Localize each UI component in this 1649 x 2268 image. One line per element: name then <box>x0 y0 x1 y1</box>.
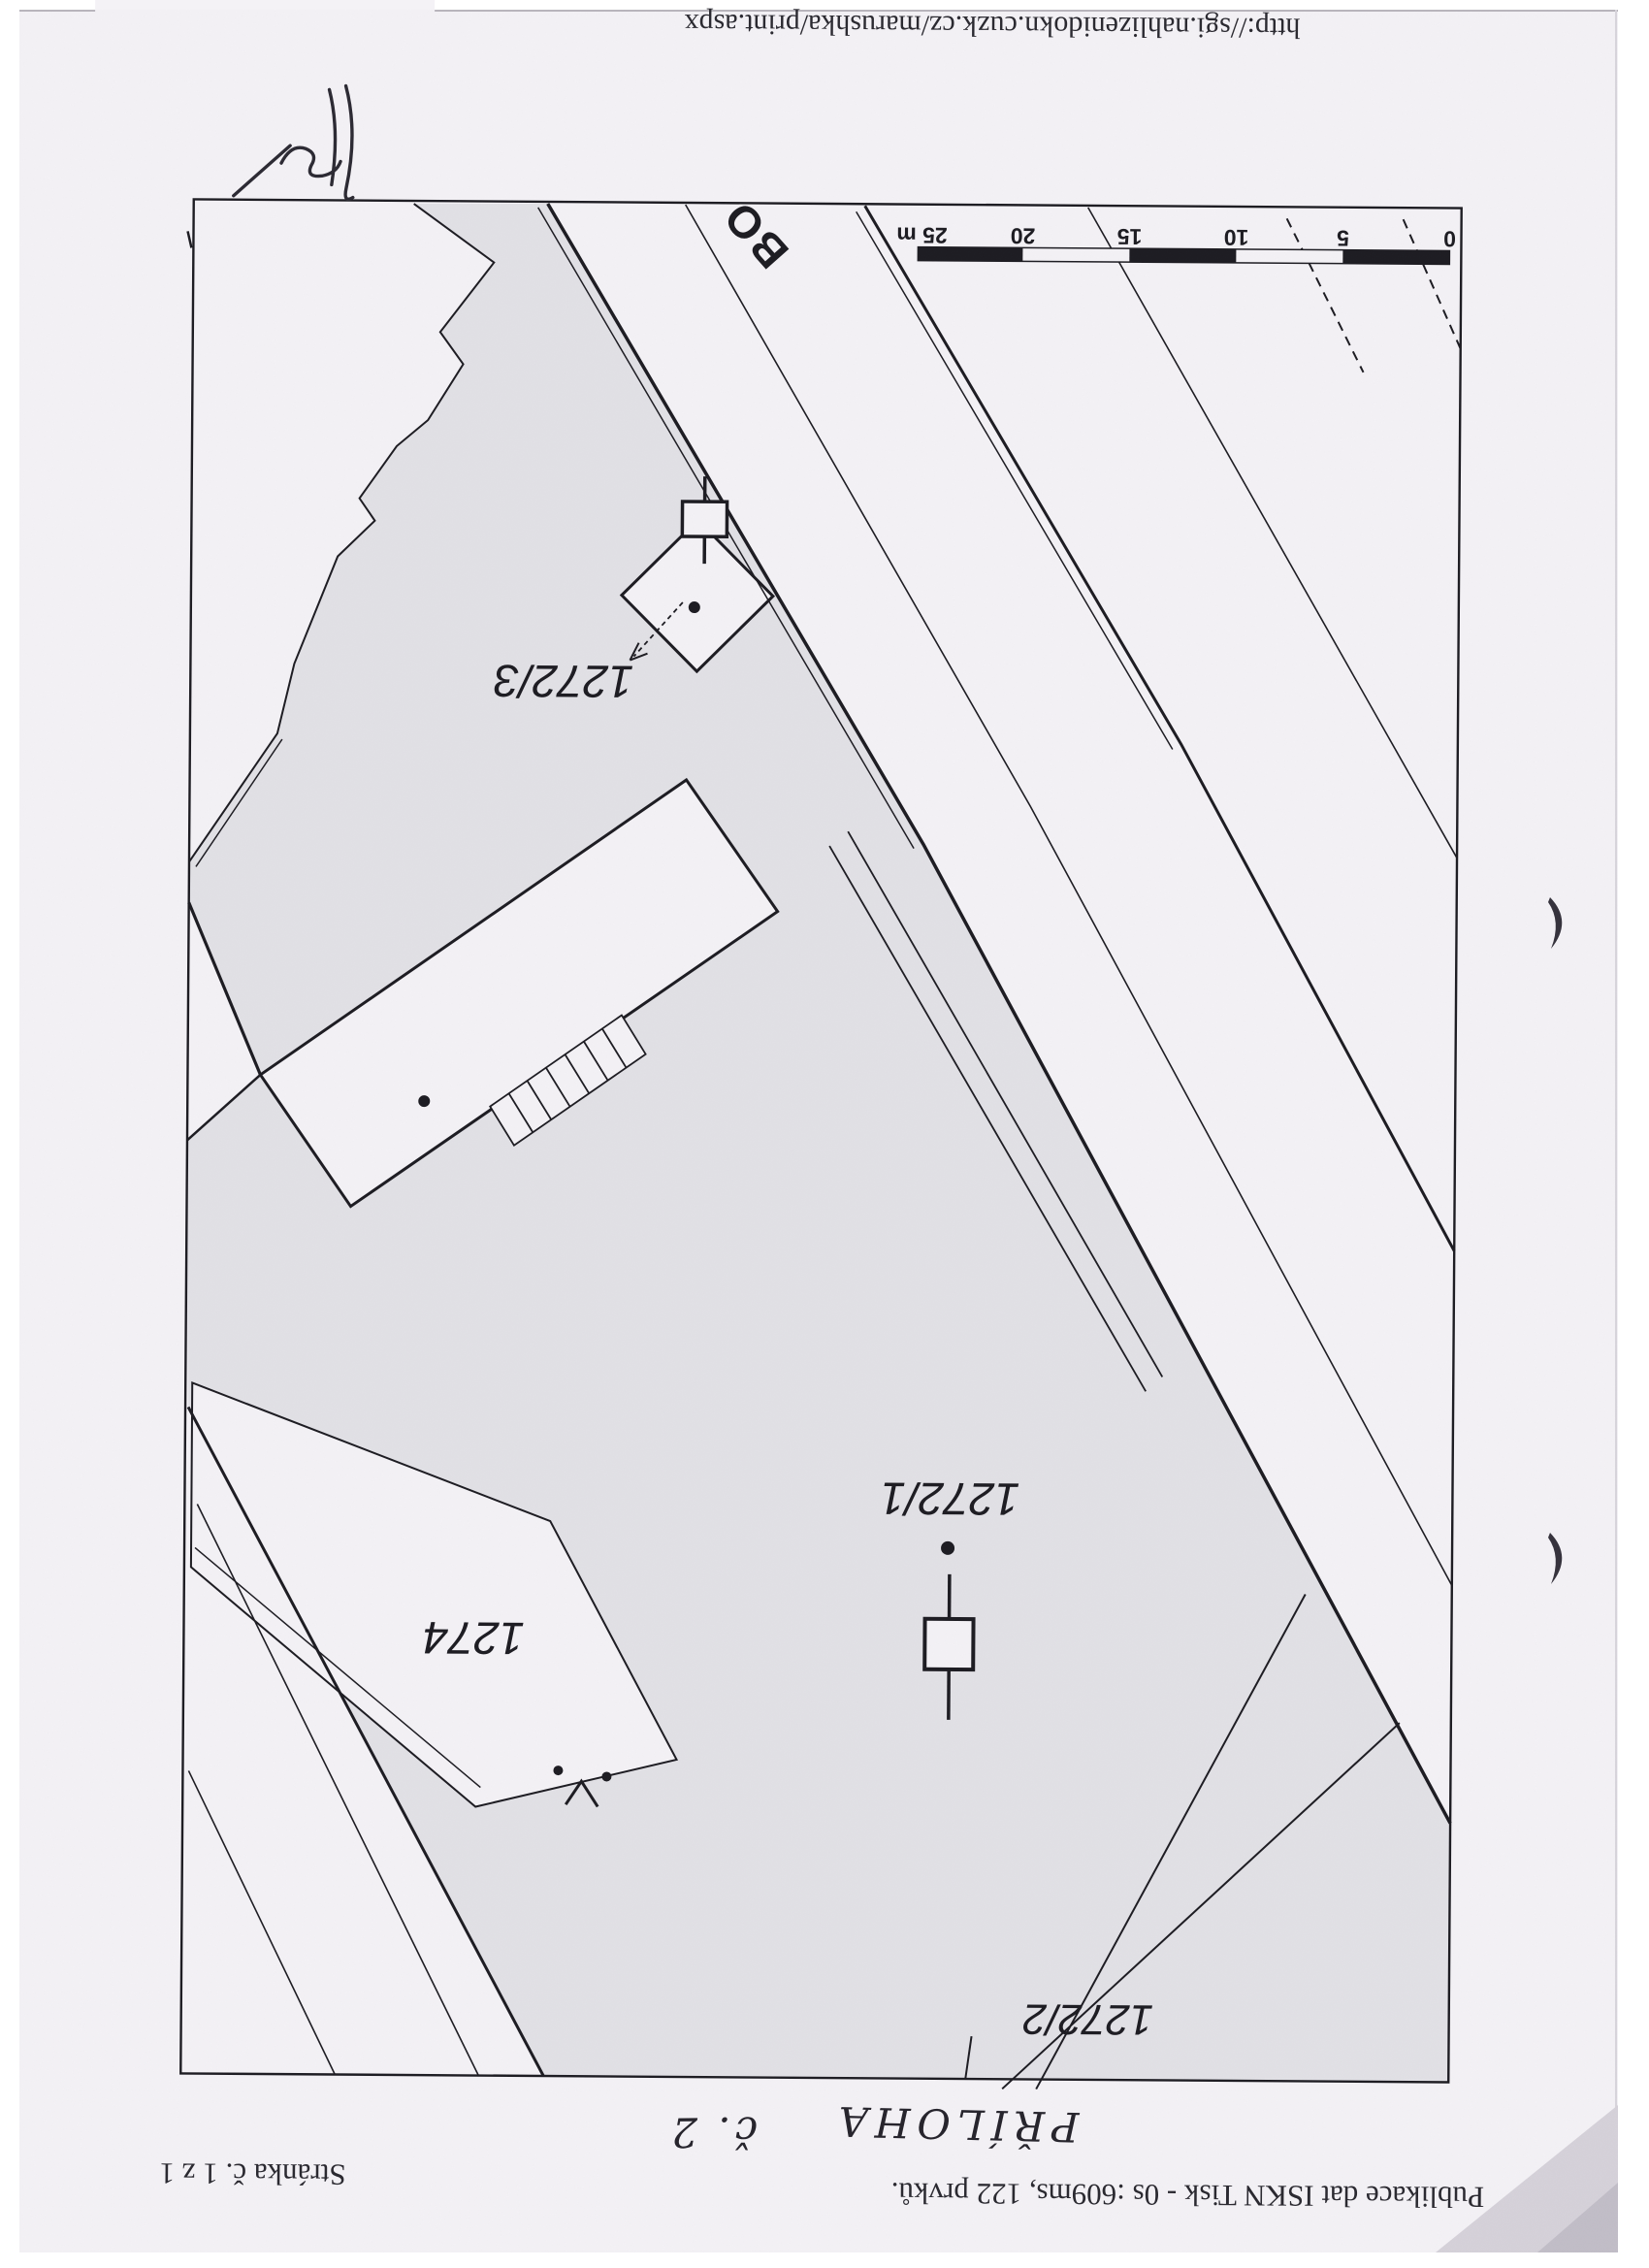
scan-bottom-margin <box>19 2252 1618 2268</box>
scanned-document-page: http://sgi.nahlizenidokn.cuzk.cz/marushk… <box>0 0 1649 2268</box>
scan-grain-overlay <box>19 10 1618 2252</box>
